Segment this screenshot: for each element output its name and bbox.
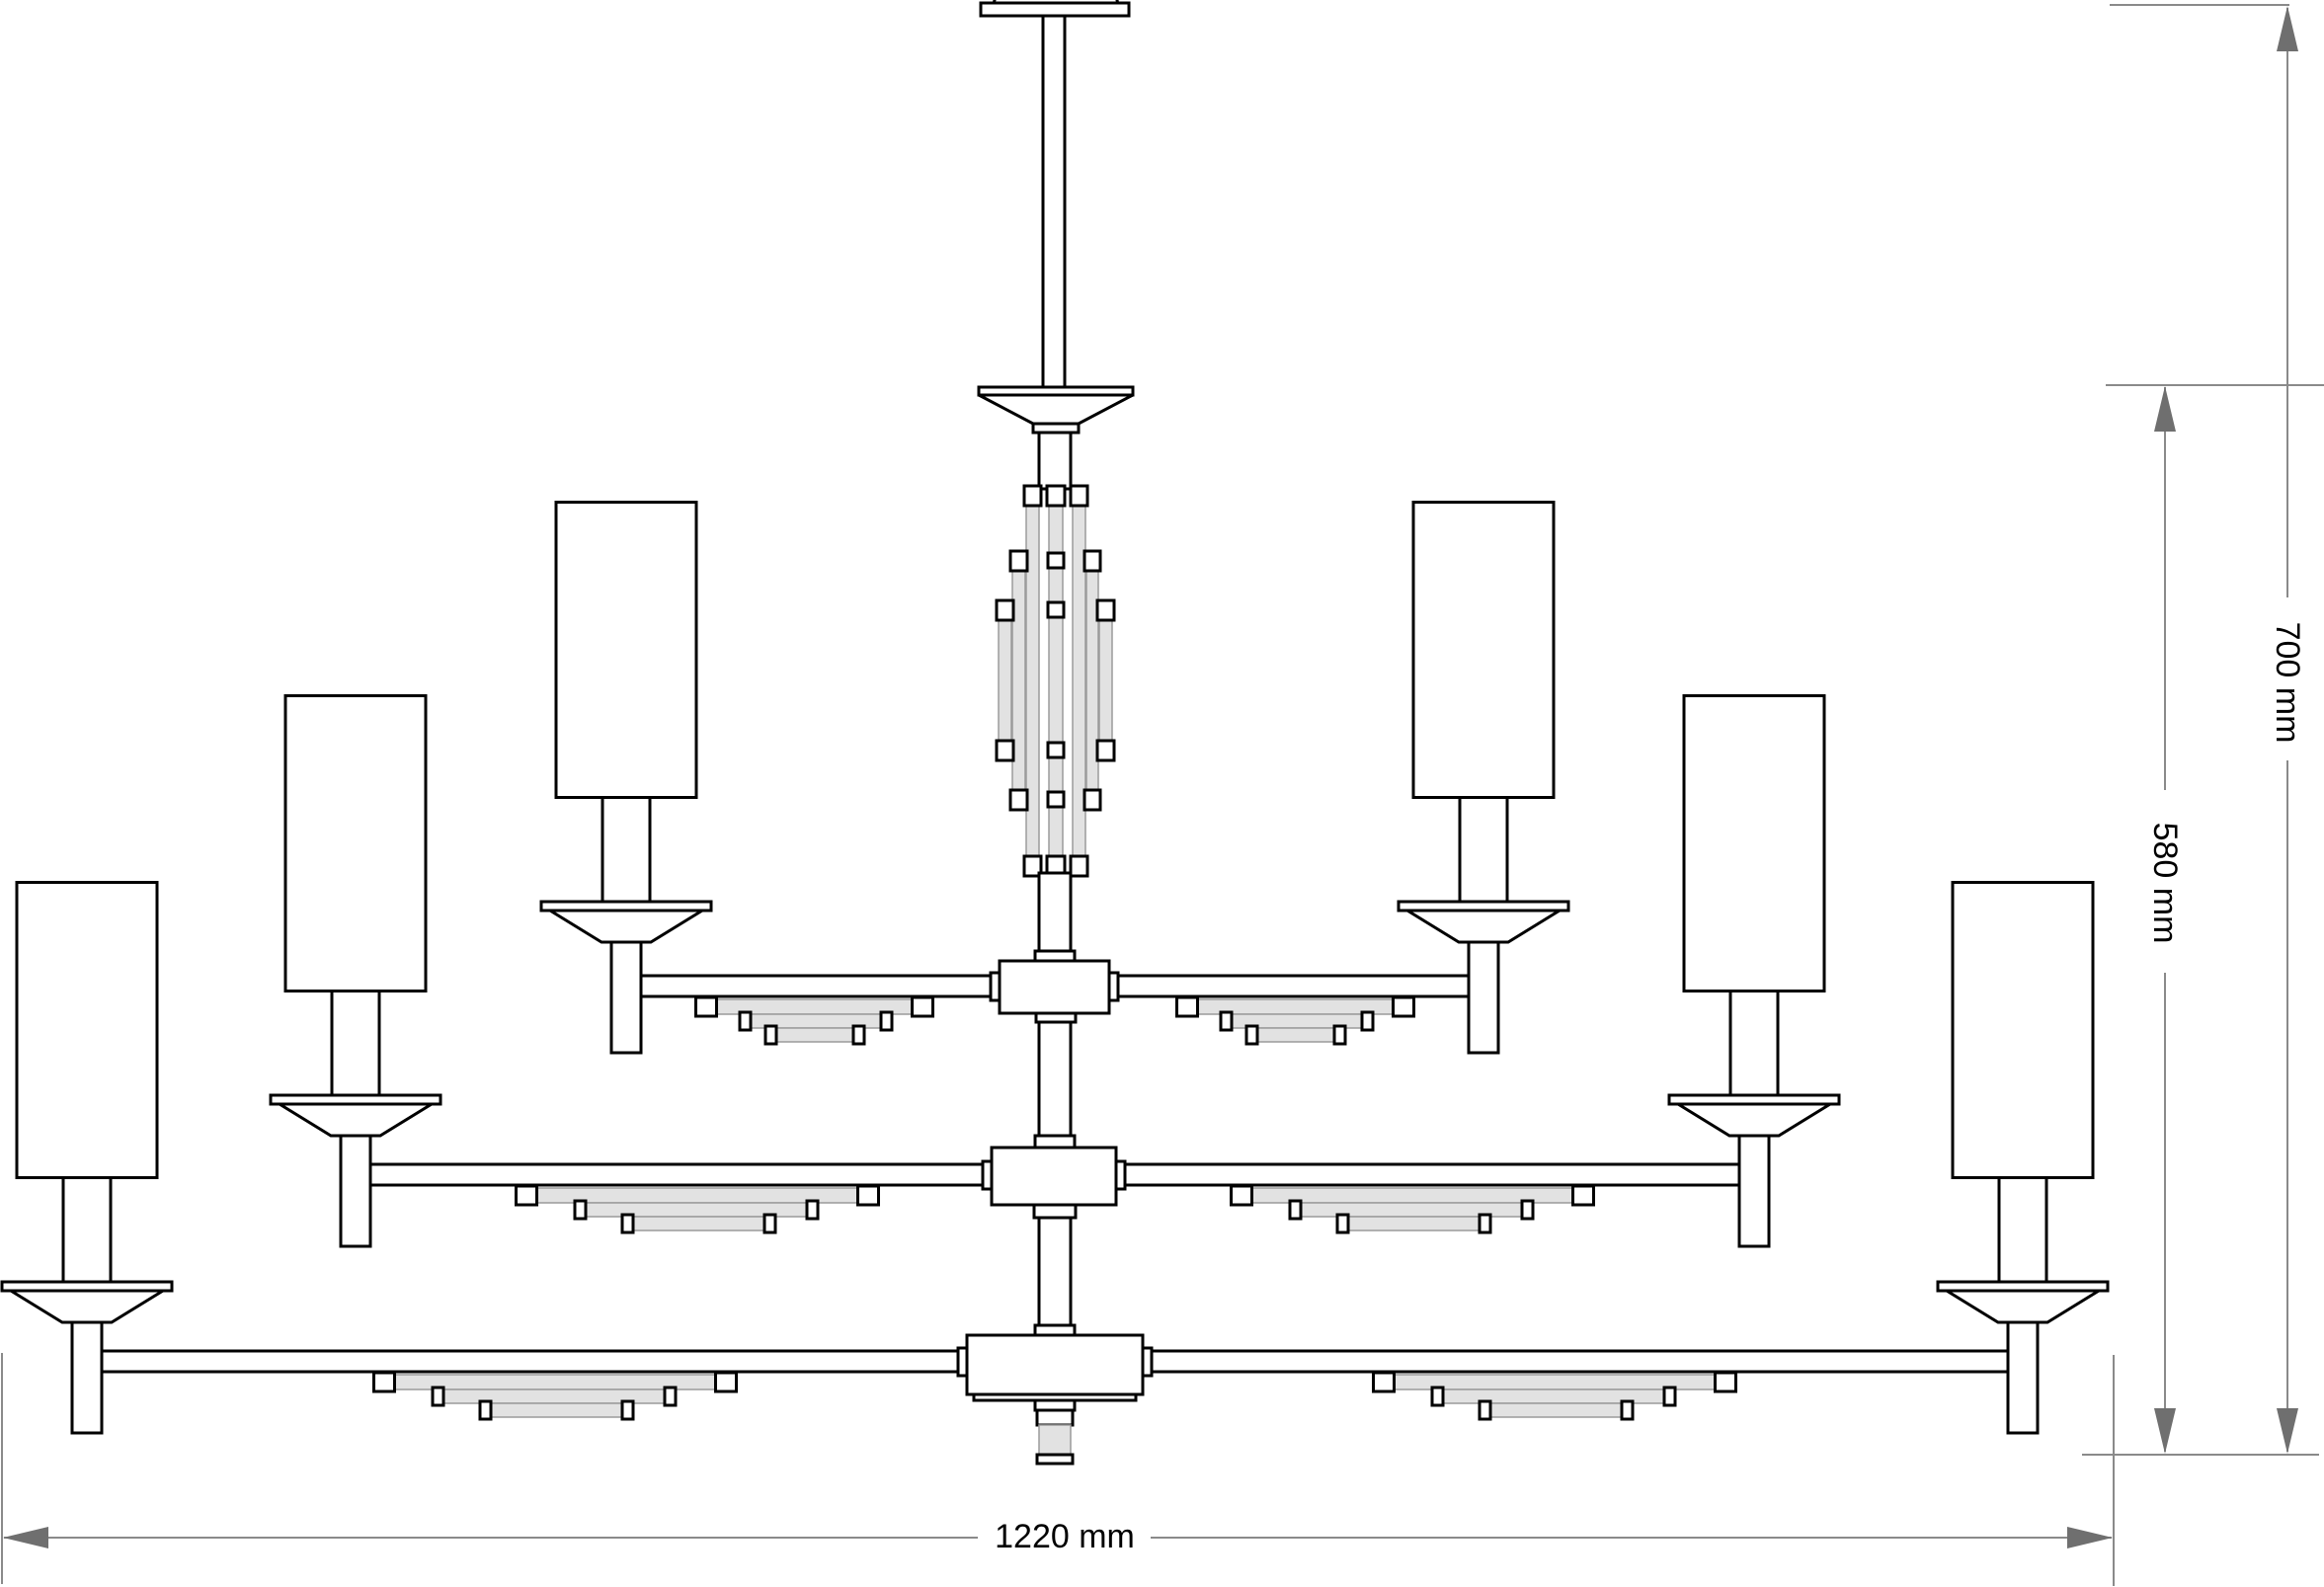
bottom-finial (1037, 1410, 1073, 1464)
arrow-up-icon (2154, 386, 2176, 432)
arrow-down-icon (2277, 1408, 2298, 1454)
tier-3-hub (958, 1325, 1152, 1410)
dimension-width-label: 1220 mm (991, 1519, 1139, 1554)
tier-2-hub (983, 1136, 1125, 1218)
candle-unit-tier1-left (541, 503, 711, 1054)
arrow-left-icon (3, 1527, 48, 1548)
tier-1-hub (991, 951, 1118, 1022)
technical-drawing-canvas: 1220 mm 700 mm 580 mm (0, 0, 2324, 1587)
crystal-stack-tier3-left (374, 1373, 737, 1419)
dimension-height-total-label: 700 mm (2270, 602, 2305, 762)
dimension-height-body-label: 580 mm (2147, 796, 2183, 970)
arrow-right-icon (2067, 1527, 2113, 1548)
crystal-stack-tier3-right (1374, 1373, 1736, 1419)
crystal-stack-tier2-right (1232, 1186, 1594, 1232)
crystal-stack-tier2-left (517, 1186, 879, 1232)
arrow-down-icon (2154, 1408, 2176, 1454)
body-crown (979, 387, 1133, 489)
crystal-stack-tier1-left (696, 997, 933, 1044)
canopy-plate (981, 3, 1129, 16)
crystal-stack-tier1-right (1177, 997, 1414, 1044)
center-column (1039, 873, 1071, 1326)
crystal-cascade (997, 486, 1114, 876)
chandelier-elevation-drawing (0, 0, 2324, 1587)
ceiling-canopy (981, 0, 1129, 16)
arrow-up-icon (2277, 6, 2298, 51)
hanging-rod (1043, 16, 1065, 387)
candle-unit-tier1-right (1399, 503, 1568, 1054)
